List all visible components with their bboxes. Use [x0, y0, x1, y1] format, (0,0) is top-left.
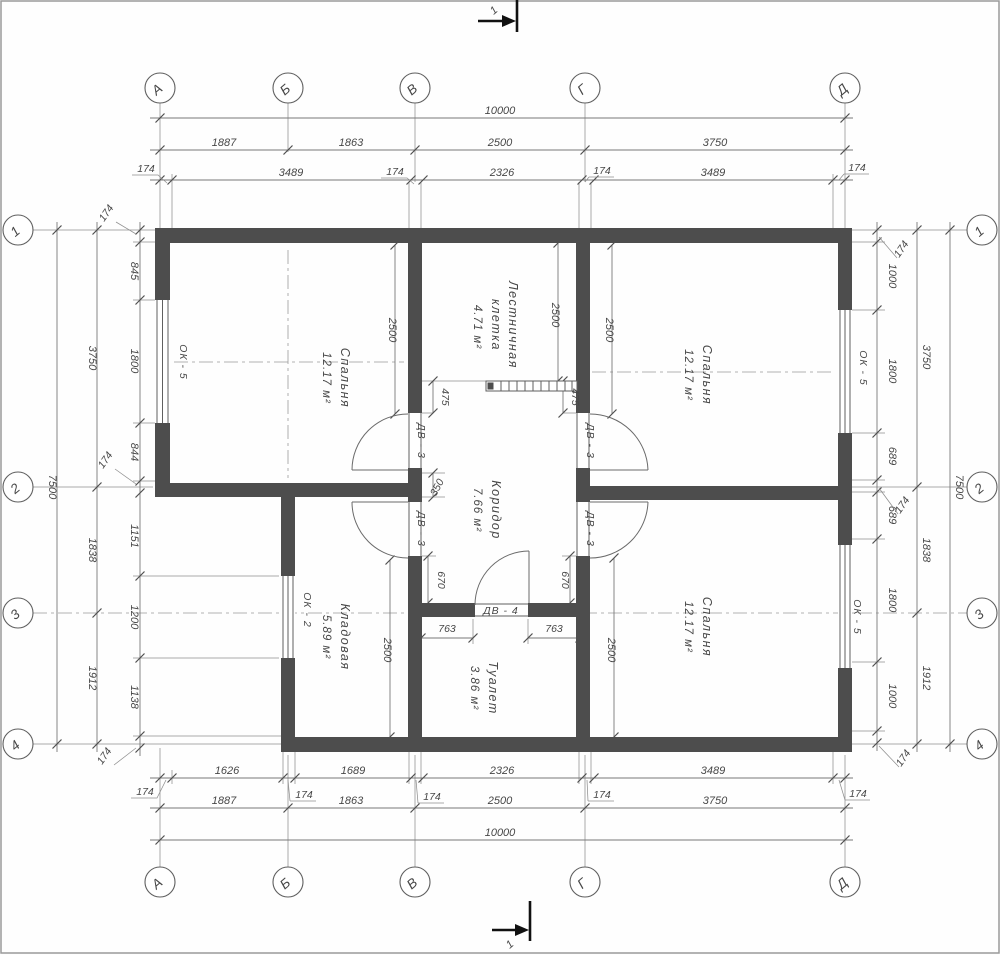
section-number: 1: [504, 938, 516, 951]
dim-stair: 475: [439, 388, 451, 406]
dim: 845: [128, 262, 140, 281]
dim-wall: 174: [96, 450, 116, 471]
dim-left-overall: 7500: [46, 475, 58, 500]
dim: 3489: [279, 167, 303, 179]
dim-wall: 174: [386, 166, 404, 178]
dim-toilet: 763: [545, 623, 563, 635]
stair-flight-symbol: [486, 381, 577, 391]
dim: 844: [128, 443, 140, 461]
wall-axis2-right: [576, 486, 852, 500]
dim: 1838: [86, 538, 98, 563]
section-number: 1: [488, 4, 500, 17]
dim-wall: 174: [892, 239, 912, 260]
door-dv3-v-lower: [352, 502, 422, 558]
wall-toilet-right: [528, 603, 590, 617]
room-staircase-name2: клетка: [489, 299, 503, 351]
dim: 3750: [86, 346, 98, 371]
dim-wall: 174: [136, 786, 154, 798]
dim-bottom-overall: 10000: [485, 827, 516, 839]
wall-exterior-top: [155, 228, 852, 243]
dim: 1000: [886, 264, 898, 289]
room-staircase-area: 4.71 м²: [471, 305, 483, 349]
dims-bottom: 1626 1689 2326 3489 1887 1863 2500 3750 …: [131, 765, 870, 839]
dim: 1912: [86, 666, 98, 690]
dim: 2326: [489, 765, 515, 777]
dim: 1912: [920, 666, 932, 690]
dim: 1887: [212, 137, 237, 149]
dim: 3489: [701, 167, 725, 179]
section-mark-bottom: 1: [492, 901, 530, 951]
dim: 1138: [128, 685, 140, 710]
window-tag-ok2-storage: ОК - 2: [301, 592, 313, 628]
dim: 1800: [886, 359, 898, 384]
wall-v-lower: [408, 556, 422, 737]
dim: 1863: [339, 137, 364, 149]
room-bedroom-br-area: 12.17 м²: [682, 601, 694, 653]
dim-door: 670: [559, 571, 571, 589]
dim: 1863: [339, 795, 364, 807]
dim: 1151: [128, 524, 140, 548]
dim-wall: 174: [849, 788, 867, 800]
wall-v-mid: [408, 468, 422, 502]
dims-left: 7500 3750 1838 1912 845 1800 844 1151 12…: [46, 203, 140, 767]
dim-room: 2500: [605, 637, 617, 663]
dim-wall: 174: [423, 791, 441, 803]
window-tag-ok5-right-bottom: ОК - 5: [851, 599, 863, 635]
wall-exterior-right-1: [838, 228, 852, 310]
dim: 1800: [886, 588, 898, 613]
dim: 1838: [920, 538, 932, 563]
dimension-ticks: [53, 114, 955, 845]
door-tag-dv3-v-lower: ДВ - 3: [415, 510, 427, 547]
dim: 689: [886, 447, 898, 465]
dim-wall: 174: [894, 748, 914, 769]
dim-wall: 174: [295, 789, 313, 801]
room-corridor-name: Коридор: [489, 480, 503, 540]
dim: 1887: [212, 795, 237, 807]
wall-toilet-left: [408, 603, 475, 617]
room-bedroom-tl-area: 12.17 м²: [320, 352, 332, 404]
door-tag-dv4-toilet: ДВ - 4: [482, 605, 519, 617]
room-corridor-area: 7.66 м²: [471, 488, 483, 532]
wall-b-upper: [281, 483, 295, 576]
dim-wall: 174: [137, 163, 155, 175]
dim-door: 670: [435, 571, 447, 589]
dim: 3750: [703, 795, 728, 807]
dim: 3750: [920, 345, 932, 370]
dim-right-overall: 7500: [953, 475, 965, 500]
wall-g-lower: [576, 556, 590, 737]
dim-top-overall: 10000: [485, 105, 516, 117]
dim: 2326: [489, 167, 515, 179]
dim-wall: 174: [593, 789, 611, 801]
window-ok2-storage: [281, 576, 295, 658]
door-tag-dv3-v-upper: ДВ - 3: [415, 422, 427, 459]
dim: 1200: [128, 605, 140, 630]
room-bedroom-tl-name: Спальня: [338, 348, 352, 408]
window-tag-ok5-right-top: ОК - 5: [857, 350, 869, 386]
room-toilet-name: Туалет: [486, 661, 500, 715]
dims-right: 7500 3750 1838 1912 1000 1800 689 689 18…: [879, 237, 965, 769]
room-bedroom-tr-area: 12.17 м²: [682, 349, 694, 401]
dim-room: 2500: [603, 317, 615, 343]
room-storage-area: 5.89 м²: [320, 615, 332, 659]
dim-wall: 174: [97, 203, 117, 224]
wall-exterior-right-3: [838, 668, 852, 752]
door-tag-dv3-g-lower: ДВ - 3: [584, 510, 596, 547]
wall-v-upper: [408, 243, 422, 413]
room-toilet-area: 3.86 м²: [468, 666, 480, 710]
window-ok5-left: [155, 300, 170, 423]
dim-corridor: 350: [428, 477, 447, 498]
dim: 1626: [215, 765, 240, 777]
dimension-lines: [57, 118, 950, 840]
room-bedroom-tr-name: Спальня: [700, 345, 714, 405]
dim-room: 2500: [386, 317, 398, 343]
floor-plan-drawing: 1 1 А Б В Г Д А Б В Г Д 1 2 3 4 1 2 3 4 …: [0, 0, 1000, 955]
room-bedroom-br-name: Спальня: [700, 597, 714, 657]
dim: 1689: [341, 765, 365, 777]
dim-wall: 174: [95, 746, 115, 767]
dim-wall: 174: [848, 162, 866, 174]
dim: 2500: [487, 795, 513, 807]
dim: 2500: [487, 137, 513, 149]
dim-room: 2500: [381, 637, 393, 663]
wall-exterior-bottom: [281, 737, 852, 752]
dim: 1000: [886, 684, 898, 709]
window-ok5-right-bottom: [838, 545, 852, 668]
window-tag-ok5-left: ОК - 5: [177, 344, 189, 380]
dim: 1800: [128, 349, 140, 374]
room-staircase-name: Лестничная: [506, 280, 520, 369]
dim-room: 2500: [549, 302, 561, 328]
door-dv3-v-upper: [352, 413, 422, 470]
dim: 3750: [703, 137, 728, 149]
room-storage-name: Кладовая: [338, 603, 352, 670]
dims-top: 10000 1887 1863 2500 3750 3489 2326 3489…: [132, 105, 869, 184]
door-tag-dv3-g-upper: ДВ - 3: [584, 422, 596, 459]
dim-stair: 475: [569, 388, 581, 406]
dim: 3489: [701, 765, 725, 777]
wall-exterior-left-upper: [155, 228, 170, 300]
wall-g-mid: [576, 468, 590, 502]
floor-plan-page: 1 1 А Б В Г Д А Б В Г Д 1 2 3 4 1 2 3 4 …: [0, 0, 1000, 955]
section-mark-top: 1: [478, 0, 517, 32]
dim-wall: 174: [593, 165, 611, 177]
dim-toilet: 763: [438, 623, 456, 635]
window-ok5-right-top: [838, 310, 852, 433]
